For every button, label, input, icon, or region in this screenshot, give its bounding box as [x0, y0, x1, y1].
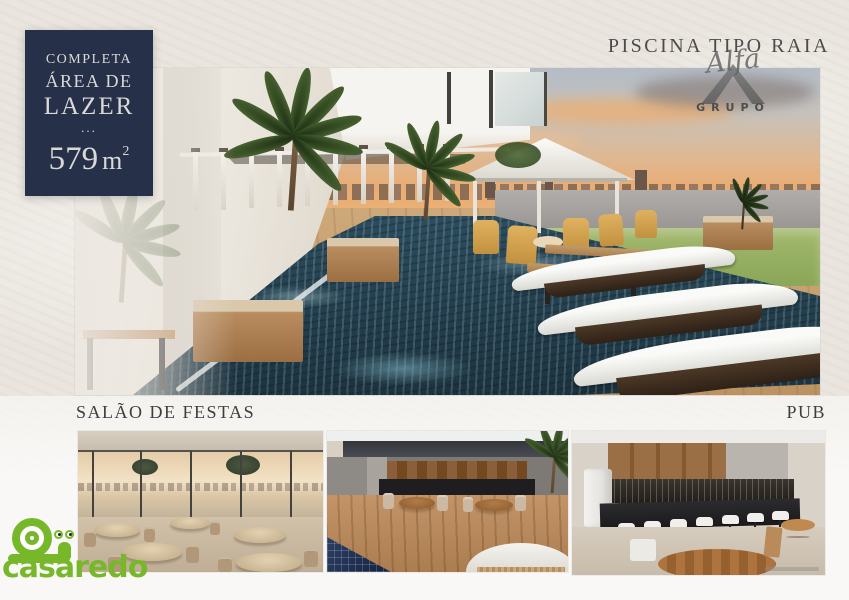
- bar-stool: [747, 513, 764, 522]
- round-table: [170, 517, 210, 529]
- upper-wood-cabinets: [608, 443, 726, 479]
- flyer-page: COMPLETA ÁREA DE LAZER ... 579m2 PISCINA…: [0, 0, 849, 600]
- window-slit: [447, 72, 451, 124]
- chair: [437, 495, 448, 511]
- palm-silhouette: [226, 455, 260, 475]
- label-salao-de-festas: SALÃO DE FESTAS: [76, 402, 255, 423]
- chair: [304, 549, 318, 567]
- skyline-silhouette: [78, 483, 323, 491]
- label-pub: PUB: [786, 402, 826, 423]
- wood-round-table: [658, 549, 776, 575]
- chair: [186, 545, 199, 563]
- badge-area-value: 579m2: [25, 141, 153, 178]
- badge-line-area-de: ÁREA DE: [25, 71, 153, 92]
- mullion: [190, 451, 192, 517]
- casaredo-watermark: casaredo: [2, 512, 152, 596]
- thumbnail-pub: [572, 431, 825, 575]
- gazebo-post: [537, 181, 541, 233]
- palm-silhouette: [132, 459, 158, 475]
- side-table: [781, 519, 815, 531]
- area-unit: m: [102, 146, 122, 175]
- mullion: [92, 451, 94, 517]
- pergola-column: [249, 151, 254, 208]
- round-table: [236, 553, 302, 572]
- lounge-chair: [598, 213, 624, 247]
- dining-table: [475, 499, 513, 511]
- pergola-column: [389, 149, 394, 203]
- glass-pane: [495, 72, 547, 126]
- hanging-plant: [495, 142, 541, 168]
- chair: [463, 497, 473, 512]
- chair: [383, 493, 394, 509]
- snail-eye: [65, 530, 74, 539]
- mullion: [240, 451, 242, 517]
- area-exponent: 2: [122, 144, 129, 159]
- planter-box: [327, 238, 399, 282]
- ceiling: [78, 431, 323, 451]
- bar-stool: [696, 517, 713, 526]
- snail-shell-spiral: [25, 531, 39, 545]
- glass-beam: [78, 450, 323, 452]
- bar-stool: [722, 515, 739, 524]
- window-slit: [489, 70, 493, 128]
- round-table: [234, 527, 286, 543]
- snail-eye: [54, 530, 63, 539]
- casaredo-brand-text: casaredo: [2, 550, 147, 585]
- lounge-chair: [506, 225, 539, 265]
- mullion: [290, 451, 292, 517]
- badge-dots: ...: [25, 123, 153, 133]
- logo-grupo-text: GRUPO: [675, 101, 791, 114]
- lounge-chair: [473, 220, 499, 254]
- main-pool-image: [75, 68, 820, 395]
- area-info-badge: COMPLETA ÁREA DE LAZER ... 579m2: [25, 30, 153, 196]
- pergola-column: [361, 149, 366, 204]
- badge-line-lazer: LAZER: [25, 93, 153, 121]
- chair: [210, 521, 220, 535]
- chair: [515, 495, 526, 511]
- thumbnail-terrace: [327, 431, 568, 572]
- dining-table: [399, 497, 435, 509]
- side-chair: [763, 526, 782, 558]
- bar-counter: [379, 479, 535, 495]
- mullion: [140, 451, 142, 517]
- pergola-column: [277, 151, 282, 207]
- render-credit-watermark: [765, 567, 819, 571]
- page-title: PISCINA TIPO RAIA: [608, 35, 830, 58]
- gazebo-beam: [463, 178, 627, 182]
- lounge-chair: [635, 210, 657, 238]
- developer-logo: Alfa GRUPO: [675, 56, 791, 112]
- bar-stool: [772, 511, 789, 520]
- upper-gray-cabinet: [726, 443, 788, 479]
- bar-cabinets: [387, 461, 527, 479]
- chair: [218, 557, 232, 572]
- area-number: 579: [49, 141, 99, 177]
- badge-line-completa: COMPLETA: [25, 52, 153, 68]
- white-chair: [630, 539, 656, 561]
